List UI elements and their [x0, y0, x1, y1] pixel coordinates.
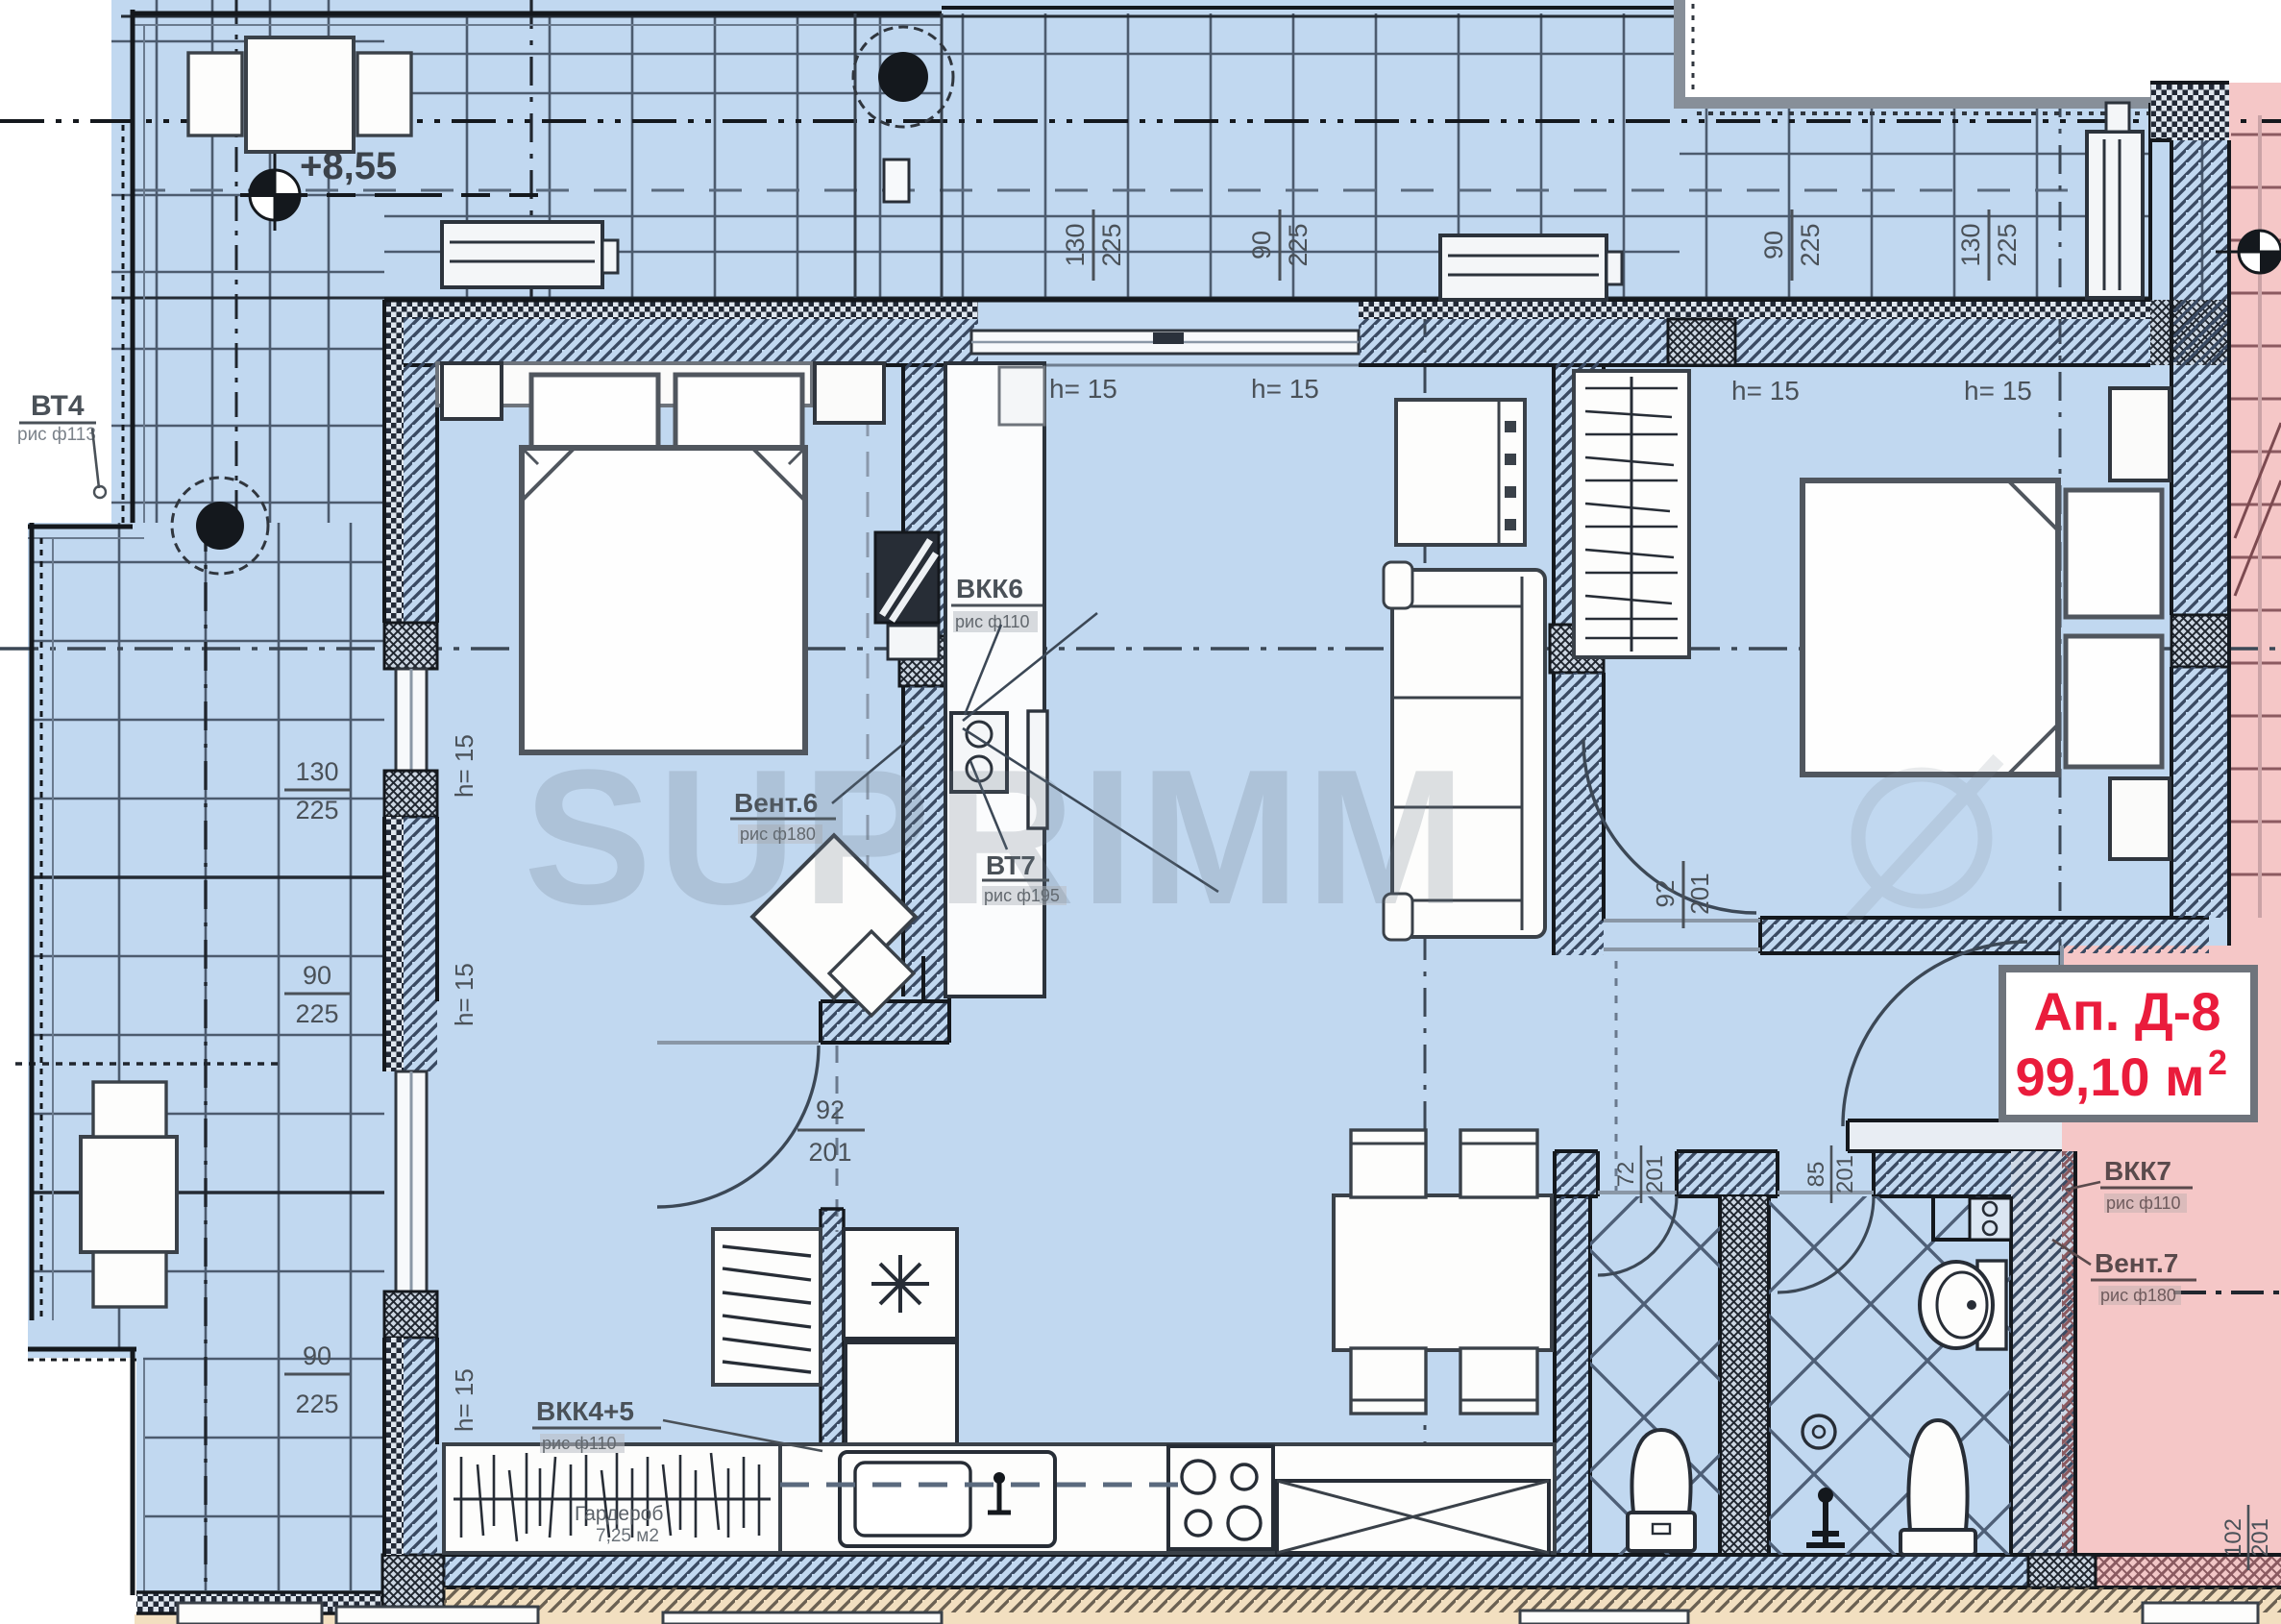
svg-text:92: 92	[1651, 880, 1680, 908]
svg-text:130: 130	[1956, 223, 1985, 266]
svg-text:+8,55: +8,55	[300, 145, 397, 187]
svg-text:7,25 м2: 7,25 м2	[596, 1526, 659, 1546]
svg-text:225: 225	[295, 1390, 338, 1418]
svg-text:ВКК7: ВКК7	[2104, 1156, 2171, 1186]
svg-text:130: 130	[1061, 223, 1090, 266]
svg-text:h= 15: h= 15	[1049, 374, 1117, 404]
svg-text:Вент.7: Вент.7	[2095, 1248, 2178, 1278]
svg-text:225: 225	[1284, 223, 1312, 266]
svg-text:85: 85	[1803, 1162, 1829, 1188]
svg-text:201: 201	[1642, 1155, 1668, 1193]
svg-text:Ап. Д-8: Ап. Д-8	[2033, 981, 2220, 1042]
svg-text:рис ф110: рис ф110	[955, 612, 1030, 631]
svg-text:h= 15: h= 15	[1251, 374, 1319, 404]
svg-text:90: 90	[1759, 231, 1788, 259]
svg-text:h= 15: h= 15	[450, 1368, 478, 1432]
svg-text:Гардероб: Гардероб	[575, 1503, 663, 1525]
svg-text:201: 201	[808, 1138, 851, 1167]
svg-text:225: 225	[1993, 223, 2022, 266]
svg-text:ВТ4: ВТ4	[31, 390, 85, 422]
svg-text:ВКК6: ВКК6	[956, 574, 1023, 603]
svg-text:рис ф180: рис ф180	[2100, 1286, 2176, 1305]
svg-text:h= 15: h= 15	[450, 734, 478, 798]
svg-text:225: 225	[295, 999, 338, 1028]
svg-text:201: 201	[1832, 1155, 1858, 1193]
svg-text:SUPRIMM: SUPRIMM	[524, 730, 1471, 945]
svg-text:102: 102	[2220, 1518, 2246, 1557]
svg-text:рис ф110: рис ф110	[2106, 1193, 2181, 1213]
svg-text:рис ф113: рис ф113	[17, 425, 96, 445]
svg-text:h= 15: h= 15	[1964, 376, 2032, 406]
svg-text:225: 225	[295, 796, 338, 824]
svg-text:90: 90	[303, 1341, 331, 1370]
svg-text:225: 225	[1796, 223, 1825, 266]
svg-text:201: 201	[1685, 873, 1714, 914]
svg-text:ВКК4+5: ВКК4+5	[536, 1396, 634, 1426]
svg-text:92: 92	[816, 1095, 845, 1124]
svg-text:2: 2	[2208, 1043, 2227, 1082]
svg-text:99,10 м: 99,10 м	[2015, 1046, 2204, 1107]
svg-text:90: 90	[1247, 231, 1276, 259]
svg-text:72: 72	[1613, 1162, 1639, 1188]
svg-text:рис ф110: рис ф110	[542, 1434, 617, 1453]
svg-text:225: 225	[1097, 223, 1126, 266]
svg-text:90: 90	[303, 961, 331, 990]
svg-text:130: 130	[295, 757, 338, 786]
svg-text:h= 15: h= 15	[1731, 376, 1800, 406]
svg-text:201: 201	[2247, 1518, 2273, 1557]
svg-text:h= 15: h= 15	[450, 963, 478, 1026]
